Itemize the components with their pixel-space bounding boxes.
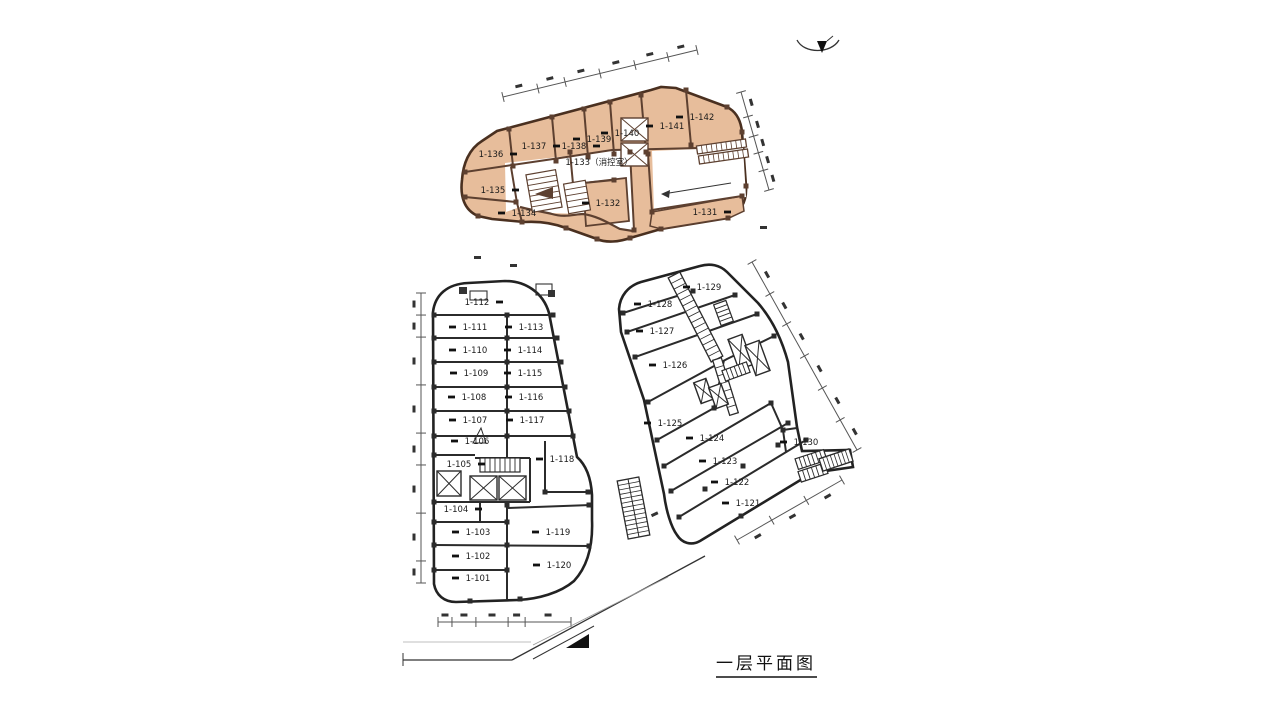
column-marker <box>769 401 774 406</box>
column-marker <box>432 453 437 458</box>
column-marker <box>669 489 674 494</box>
column-marker <box>662 464 667 469</box>
column-marker <box>476 214 481 219</box>
elevator-shaft-icon <box>470 476 497 500</box>
svg-text:1-126: 1-126 <box>663 361 688 371</box>
column-marker <box>744 184 749 189</box>
svg-text:1-110: 1-110 <box>463 346 488 356</box>
svg-text:1-124: 1-124 <box>700 434 725 444</box>
column-marker <box>646 400 651 405</box>
drawing-title: 一层平面图 <box>716 654 817 677</box>
column-marker <box>725 105 730 110</box>
column-marker <box>520 220 525 225</box>
svg-text:1-135: 1-135 <box>481 186 506 196</box>
column-marker <box>628 236 633 241</box>
floor-plan-canvas: 1-1311-1321-133（消控室）1-1341-1351-1361-137… <box>0 0 1280 720</box>
door-dash-icon <box>504 349 511 352</box>
svg-text:1-133（消控室）: 1-133（消控室） <box>565 157 632 168</box>
equipment-box <box>459 287 467 294</box>
column-marker <box>432 313 437 318</box>
column-marker <box>432 336 437 341</box>
svg-text:1-123: 1-123 <box>713 457 738 467</box>
floor-plan-page: 1-1311-1321-133（消控室）1-1341-1351-1361-137… <box>0 0 1280 720</box>
door-dash-icon <box>448 396 455 399</box>
column-marker <box>741 464 746 469</box>
column-marker <box>468 599 473 604</box>
dimension-line <box>413 293 427 583</box>
column-marker <box>543 490 548 495</box>
column-marker <box>563 385 568 390</box>
column-marker <box>505 434 510 439</box>
page-title: 一层平面图 <box>716 654 816 674</box>
door-dash-icon <box>452 555 459 558</box>
dimension-line <box>438 614 571 628</box>
column-marker <box>559 360 564 365</box>
door-dash-icon <box>449 349 456 352</box>
column-marker <box>554 159 559 164</box>
door-dash-icon <box>449 326 456 329</box>
column-marker <box>567 409 572 414</box>
column-marker <box>612 178 617 183</box>
door-dash-icon <box>699 460 706 463</box>
column-marker <box>739 514 744 519</box>
column-marker <box>786 421 791 426</box>
door-dash-icon <box>553 145 560 148</box>
svg-text:1-116: 1-116 <box>519 393 544 403</box>
elevator-shaft-icon <box>499 476 526 500</box>
door-dash-icon <box>449 419 456 422</box>
column-marker <box>505 503 510 508</box>
column-marker <box>507 127 512 132</box>
svg-text:1-113: 1-113 <box>519 323 544 333</box>
svg-text:1-130: 1-130 <box>794 438 819 448</box>
door-dash-icon <box>504 372 511 375</box>
column-marker <box>505 360 510 365</box>
column-marker <box>514 200 519 205</box>
column-marker <box>726 216 731 221</box>
column-marker <box>703 487 708 492</box>
column-marker <box>684 88 689 93</box>
svg-text:1-122: 1-122 <box>725 478 750 488</box>
svg-text:1-108: 1-108 <box>462 393 487 403</box>
door-dash-icon <box>506 419 513 422</box>
door-dash-icon <box>505 326 512 329</box>
door-dash-icon <box>536 458 543 461</box>
door-dash-icon <box>452 577 459 580</box>
svg-text:1-134: 1-134 <box>512 209 537 219</box>
column-marker <box>712 406 717 411</box>
door-dash-icon <box>644 422 651 425</box>
column-marker <box>677 515 682 520</box>
column-marker <box>586 490 591 495</box>
svg-text:1-107: 1-107 <box>463 416 488 426</box>
column-marker <box>505 336 510 341</box>
door-dash-icon <box>510 153 517 156</box>
column-marker <box>505 520 510 525</box>
svg-text:1-141: 1-141 <box>660 122 685 132</box>
door-dash-icon <box>683 286 690 289</box>
door-dash-icon <box>573 138 580 141</box>
column-marker <box>632 228 637 233</box>
door-dash-icon <box>533 564 540 567</box>
svg-text:1-115: 1-115 <box>518 369 543 379</box>
column-marker <box>564 226 569 231</box>
column-marker <box>432 520 437 525</box>
column-marker <box>505 313 510 318</box>
column-marker <box>550 115 555 120</box>
unit-label-1-133: 1-133（消控室） <box>565 157 632 168</box>
svg-text:1-137: 1-137 <box>522 142 547 152</box>
door-dash-icon <box>450 372 457 375</box>
column-marker <box>463 195 468 200</box>
svg-text:1-118: 1-118 <box>550 455 575 465</box>
equipment-box <box>548 290 555 297</box>
column-marker <box>633 355 638 360</box>
column-marker <box>659 227 664 232</box>
stair-icon <box>480 458 520 472</box>
door-dash-icon <box>498 212 505 215</box>
door-dash-icon <box>636 330 643 333</box>
door-dash-icon <box>496 301 503 304</box>
column-marker <box>518 597 523 602</box>
column-marker <box>639 93 644 98</box>
svg-text:1-109: 1-109 <box>464 369 489 379</box>
door-dash-icon <box>593 145 600 148</box>
column-marker <box>432 568 437 573</box>
column-marker <box>505 409 510 414</box>
column-marker <box>608 100 613 105</box>
door-dash-icon <box>582 202 589 205</box>
column-marker <box>432 360 437 365</box>
column-marker <box>628 150 633 155</box>
door-dash-icon <box>452 531 459 534</box>
door-dash-icon <box>722 502 729 505</box>
svg-text:1-127: 1-127 <box>650 327 675 337</box>
svg-text:1-125: 1-125 <box>658 419 683 429</box>
door-dash-icon <box>505 396 512 399</box>
column-marker <box>733 293 738 298</box>
door-dash-icon <box>475 508 482 511</box>
ramp-arrow <box>566 634 589 648</box>
stair-icon <box>564 180 591 213</box>
column-marker <box>621 311 626 316</box>
column-marker <box>689 143 694 148</box>
door-dash-icon <box>724 211 731 214</box>
column-marker <box>646 152 651 157</box>
door-dash-icon <box>711 481 718 484</box>
column-marker <box>505 568 510 573</box>
svg-text:1-119: 1-119 <box>546 528 571 538</box>
column-marker <box>650 210 655 215</box>
elevator-shaft-icon <box>437 471 461 496</box>
svg-text:1-120: 1-120 <box>547 561 572 571</box>
column-marker <box>432 385 437 390</box>
svg-text:1-103: 1-103 <box>466 528 491 538</box>
svg-text:1-121: 1-121 <box>736 499 761 509</box>
svg-text:1-129: 1-129 <box>697 283 722 293</box>
door-dash-icon <box>686 437 693 440</box>
column-marker <box>571 434 576 439</box>
column-marker <box>587 503 592 508</box>
door-dash-icon <box>649 364 656 367</box>
svg-text:1-105: 1-105 <box>447 460 472 470</box>
column-marker <box>595 237 600 242</box>
column-marker <box>511 164 516 169</box>
column-marker <box>755 312 760 317</box>
column-marker <box>432 500 437 505</box>
door-dash-icon <box>646 125 653 128</box>
column-marker <box>655 438 660 443</box>
svg-text:1-142: 1-142 <box>690 113 715 123</box>
column-marker <box>740 194 745 199</box>
door-dash-icon <box>451 440 458 443</box>
column-marker <box>432 434 437 439</box>
svg-text:1-139: 1-139 <box>587 135 612 145</box>
door-dash-icon <box>780 441 787 444</box>
svg-text:1-138: 1-138 <box>562 142 587 152</box>
column-marker <box>432 543 437 548</box>
north-arrow-icon <box>797 36 839 53</box>
door-dash-icon <box>634 303 641 306</box>
svg-text:1-102: 1-102 <box>466 552 491 562</box>
svg-text:1-140: 1-140 <box>615 129 640 139</box>
column-marker <box>463 170 468 175</box>
svg-text:1-111: 1-111 <box>463 323 488 333</box>
door-dash-icon <box>478 463 485 466</box>
column-marker <box>691 289 696 294</box>
column-marker <box>555 336 560 341</box>
column-marker <box>587 544 592 549</box>
svg-text:1-112: 1-112 <box>465 298 490 308</box>
svg-text:1-131: 1-131 <box>693 208 718 218</box>
column-marker <box>612 152 617 157</box>
door-dash-icon <box>532 531 539 534</box>
door-dash-icon <box>512 189 519 192</box>
column-marker <box>582 107 587 112</box>
column-marker <box>551 313 556 318</box>
svg-text:1-128: 1-128 <box>648 300 673 310</box>
column-marker <box>505 385 510 390</box>
column-marker <box>432 409 437 414</box>
svg-text:1-101: 1-101 <box>466 574 491 584</box>
column-marker <box>625 330 630 335</box>
door-dash-icon <box>601 132 608 135</box>
column-marker <box>781 428 786 433</box>
svg-text:1-114: 1-114 <box>518 346 543 356</box>
svg-text:1-104: 1-104 <box>444 505 469 515</box>
door-dash-icon <box>676 116 683 119</box>
svg-text:1-132: 1-132 <box>596 199 621 209</box>
column-marker <box>740 130 745 135</box>
svg-text:1-136: 1-136 <box>479 150 504 160</box>
svg-text:1-106: 1-106 <box>465 437 490 447</box>
column-marker <box>772 334 777 339</box>
svg-text:1-117: 1-117 <box>520 416 545 426</box>
column-marker <box>505 543 510 548</box>
column-marker <box>776 443 781 448</box>
